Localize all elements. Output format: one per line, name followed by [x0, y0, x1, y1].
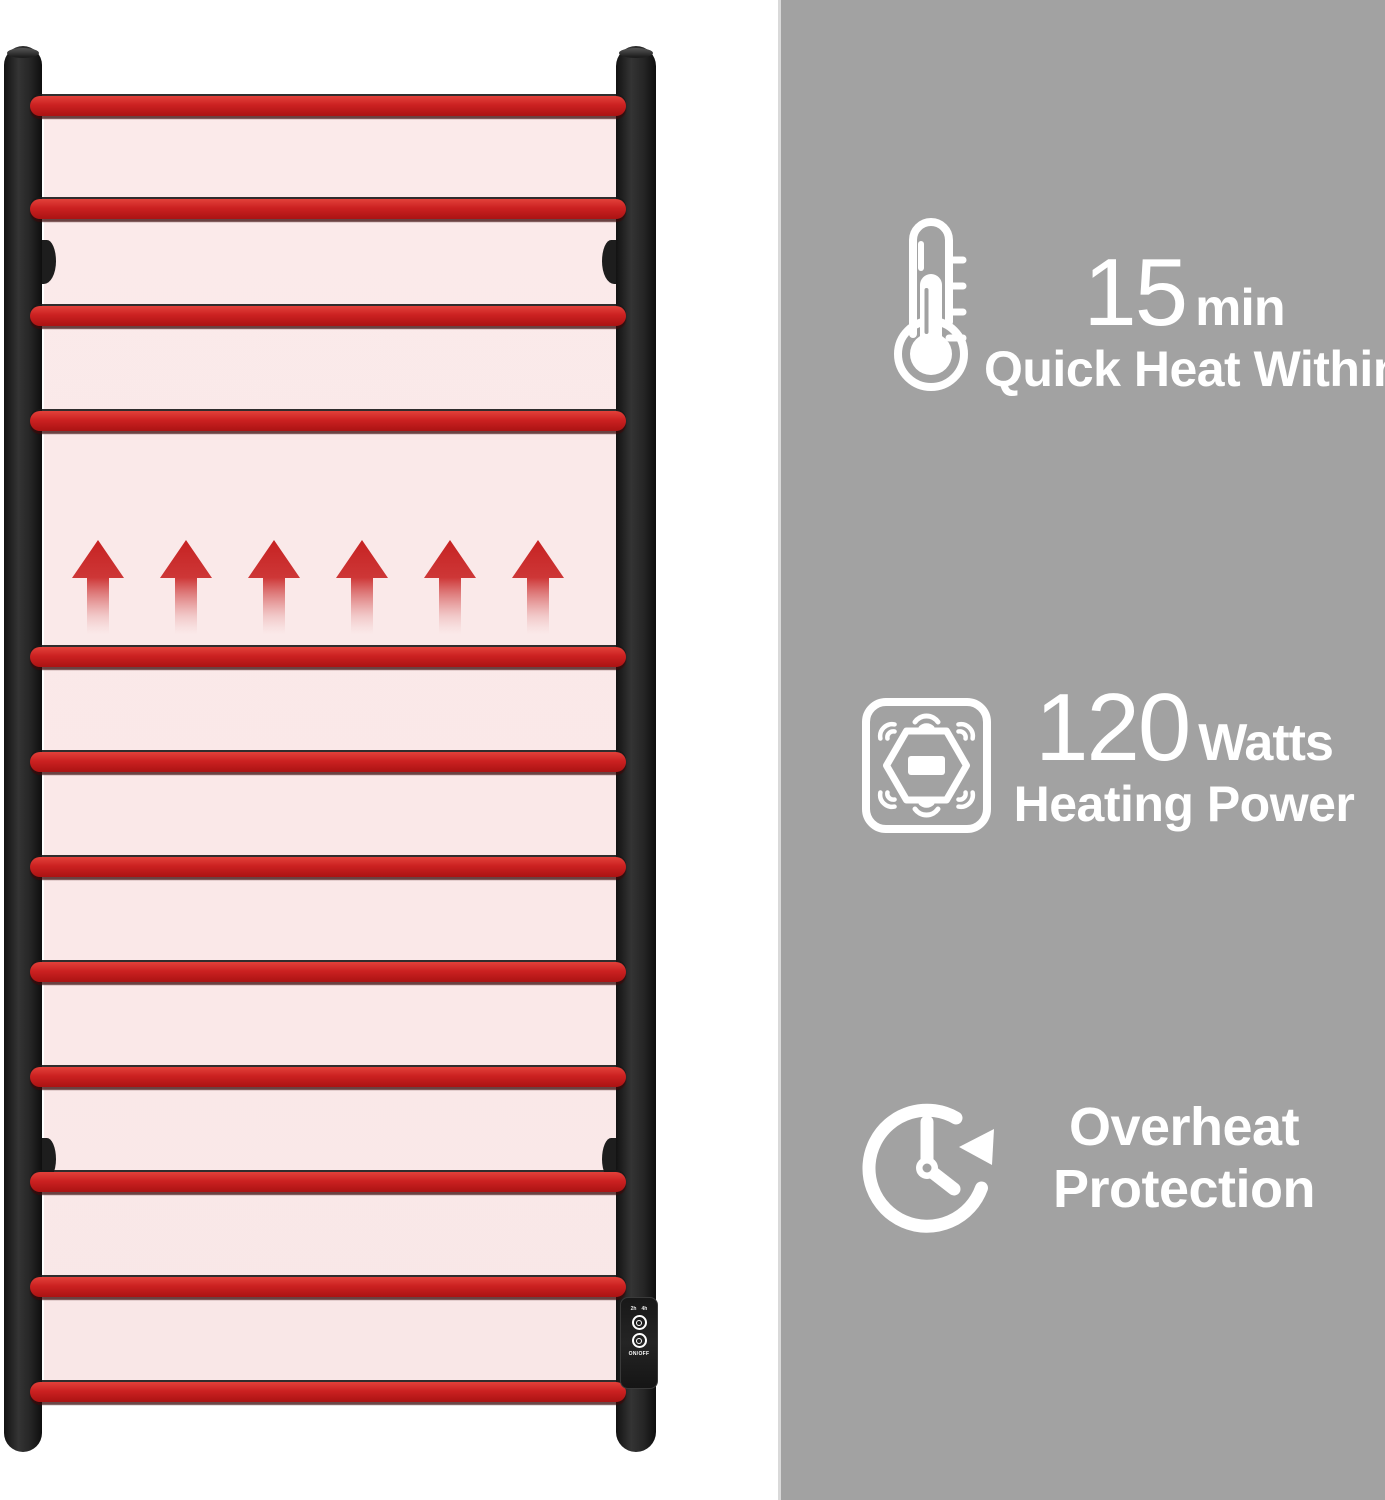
heat-arrows [0, 538, 778, 634]
right-post [616, 46, 656, 1452]
timer-button-icon [636, 1320, 642, 1326]
thermometer-icon [893, 212, 988, 394]
power-button [632, 1333, 647, 1348]
heat-arrow-icon [248, 538, 300, 634]
heat-arrow-icon [72, 538, 124, 634]
heating-power-number: 120 [1035, 680, 1189, 776]
features-panel: 15 min Quick Heat Within [778, 0, 1385, 1500]
heating-power-sensor-icon [860, 692, 993, 839]
overheat-caption-line2: Protection [984, 1158, 1384, 1220]
timer-indicator-labels: 2h 4h [631, 1306, 648, 1312]
quick-heat-number: 15 [1083, 245, 1186, 341]
post-cap [619, 48, 653, 58]
timer-4h-label: 4h [642, 1306, 648, 1312]
towel-warmer-control-panel: 2h 4h ON/OFF [620, 1297, 658, 1389]
feature-overheat-protection: Overheat Protection [984, 1096, 1384, 1220]
quick-heat-unit: min [1195, 278, 1284, 338]
heating-power-value: 120 Watts [984, 680, 1384, 776]
heat-arrow-icon [424, 538, 476, 634]
quick-heat-value: 15 min [984, 245, 1384, 341]
heat-arrow-icon [160, 538, 212, 634]
post-cap [7, 48, 39, 58]
overheat-caption-line1: Overheat [984, 1096, 1384, 1158]
timer-button [632, 1315, 647, 1330]
left-post [4, 46, 42, 1452]
on-off-label: ON/OFF [629, 1351, 650, 1357]
quick-heat-caption: Quick Heat Within [984, 341, 1384, 399]
timer-2h-label: 2h [631, 1306, 637, 1312]
heat-arrow-icon [512, 538, 564, 634]
heated-panel-backdrop [44, 100, 618, 1402]
overheat-protection-clock-icon [853, 1088, 1005, 1245]
heating-power-caption: Heating Power [984, 776, 1384, 834]
power-button-icon [636, 1338, 642, 1344]
feature-heating-power: 120 Watts Heating Power [984, 680, 1384, 834]
feature-quick-heat: 15 min Quick Heat Within [984, 245, 1384, 399]
heating-power-unit: Watts [1198, 713, 1333, 773]
towel-warmer-image: 2h 4h ON/OFF [0, 0, 778, 1500]
heat-arrow-icon [336, 538, 388, 634]
product-infographic: 2h 4h ON/OFF [0, 0, 1385, 1500]
